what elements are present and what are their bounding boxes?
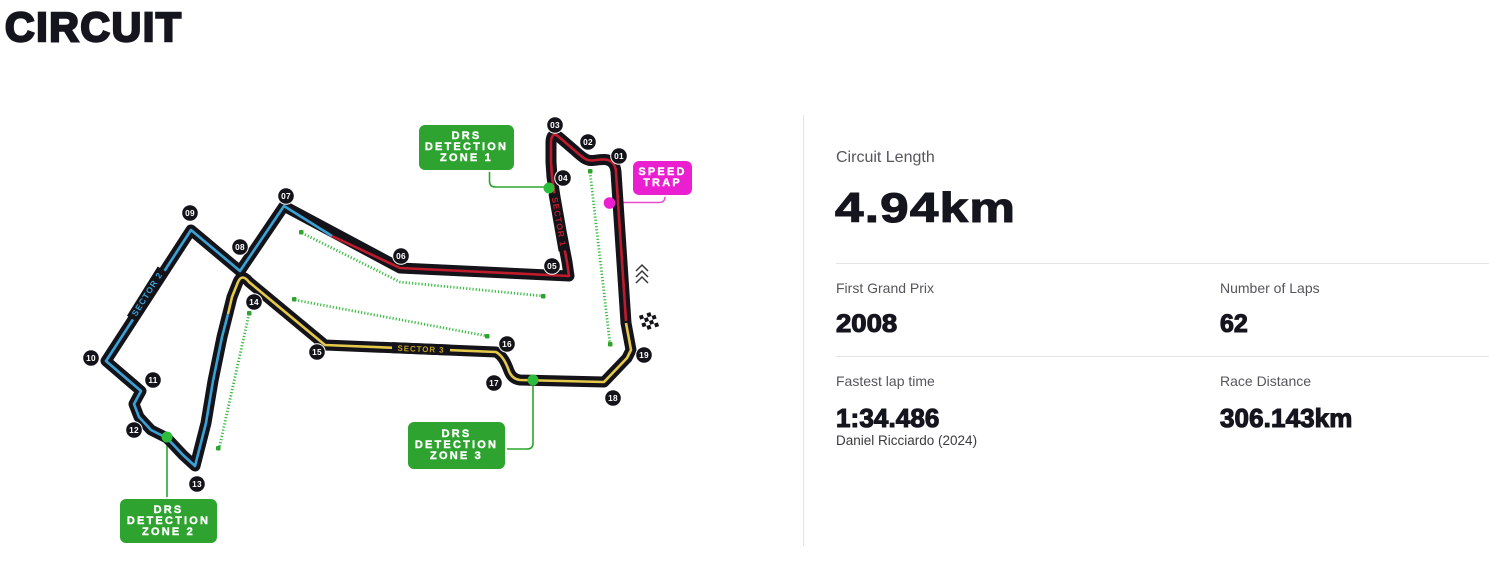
svg-text:06: 06 (396, 251, 406, 261)
svg-text:16: 16 (502, 339, 512, 349)
svg-text:12: 12 (129, 425, 139, 435)
svg-text:SECTOR 2: SECTOR 2 (129, 270, 164, 318)
svg-text:14: 14 (249, 297, 259, 307)
svg-text:07: 07 (281, 191, 291, 201)
svg-text:11: 11 (148, 375, 157, 385)
svg-text:18: 18 (608, 393, 618, 403)
svg-text:09: 09 (185, 208, 195, 218)
svg-text:17: 17 (489, 378, 499, 388)
svg-text:10: 10 (86, 353, 96, 363)
svg-text:02: 02 (583, 137, 593, 147)
svg-text:08: 08 (235, 242, 245, 252)
svg-text:05: 05 (547, 261, 557, 271)
svg-text:03: 03 (550, 120, 560, 130)
svg-text:04: 04 (558, 173, 568, 183)
svg-text:13: 13 (192, 479, 202, 489)
svg-text:SECTOR 1: SECTOR 1 (550, 196, 569, 247)
svg-text:01: 01 (614, 151, 624, 161)
svg-text:15: 15 (312, 347, 322, 357)
svg-text:19: 19 (639, 350, 649, 360)
